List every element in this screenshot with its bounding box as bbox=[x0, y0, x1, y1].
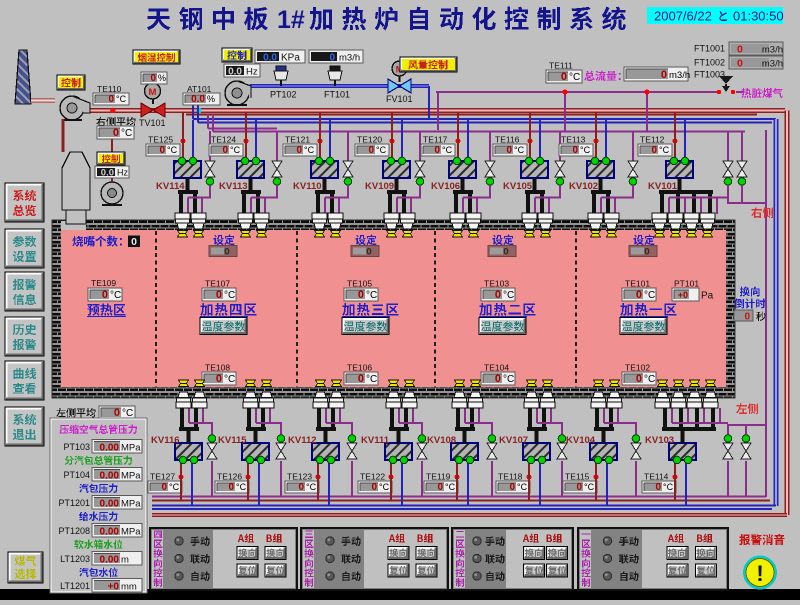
svg-text:0.0: 0.0 bbox=[228, 67, 242, 78]
svg-text:0: 0 bbox=[737, 58, 743, 70]
svg-text:FT1001: FT1001 bbox=[694, 44, 725, 54]
svg-text:°C: °C bbox=[167, 145, 178, 155]
svg-text:0: 0 bbox=[655, 482, 661, 493]
svg-text:KV107: KV107 bbox=[499, 435, 528, 446]
svg-text:KV112: KV112 bbox=[288, 435, 317, 446]
svg-text:FT1003: FT1003 bbox=[694, 70, 725, 80]
svg-text:TE105: TE105 bbox=[347, 279, 372, 289]
svg-text:%: % bbox=[207, 94, 215, 104]
svg-text:°C: °C bbox=[169, 482, 180, 492]
svg-text:PT1208: PT1208 bbox=[58, 526, 90, 536]
svg-text:Hz: Hz bbox=[117, 168, 128, 178]
svg-text:°C: °C bbox=[514, 145, 525, 155]
svg-text:Pa: Pa bbox=[701, 291, 714, 302]
svg-text:TE118: TE118 bbox=[498, 472, 523, 482]
svg-text:0: 0 bbox=[114, 407, 120, 419]
svg-text:°C: °C bbox=[584, 482, 595, 492]
svg-text:m: m bbox=[121, 555, 129, 566]
svg-text:Hz: Hz bbox=[246, 67, 258, 78]
svg-text:TE123: TE123 bbox=[287, 472, 312, 482]
svg-text:TE124: TE124 bbox=[211, 135, 236, 145]
svg-text:°C: °C bbox=[110, 290, 121, 301]
svg-text:0: 0 bbox=[737, 44, 743, 56]
svg-text:0: 0 bbox=[503, 247, 508, 258]
svg-text:PT1201: PT1201 bbox=[58, 498, 90, 508]
svg-text:KV108: KV108 bbox=[427, 435, 456, 446]
svg-text:TE113: TE113 bbox=[561, 135, 586, 145]
svg-text:0.00: 0.00 bbox=[100, 527, 120, 538]
svg-text:KV116: KV116 bbox=[151, 435, 180, 446]
svg-text:0: 0 bbox=[495, 289, 501, 301]
svg-text:0: 0 bbox=[222, 145, 228, 156]
svg-text:0.0: 0.0 bbox=[263, 53, 277, 64]
svg-text:0: 0 bbox=[358, 373, 364, 385]
svg-text:TE108: TE108 bbox=[205, 363, 230, 373]
svg-text:!: ! bbox=[756, 561, 763, 586]
svg-text:0: 0 bbox=[576, 482, 582, 493]
svg-text:PT102: PT102 bbox=[270, 90, 297, 100]
svg-text:°C: °C bbox=[517, 482, 528, 492]
svg-text:0: 0 bbox=[358, 289, 364, 301]
svg-text:KV103: KV103 bbox=[645, 435, 674, 446]
svg-text:0: 0 bbox=[644, 247, 649, 258]
svg-text:°C: °C bbox=[644, 290, 655, 301]
svg-text:°C: °C bbox=[503, 374, 514, 385]
svg-text:0: 0 bbox=[366, 247, 371, 258]
svg-text:%: % bbox=[158, 73, 166, 83]
svg-text:mm: mm bbox=[121, 582, 137, 593]
svg-text:TE127: TE127 bbox=[150, 472, 175, 482]
svg-text:KPa: KPa bbox=[281, 53, 300, 64]
svg-text:0: 0 bbox=[224, 247, 229, 258]
svg-text:0: 0 bbox=[636, 289, 642, 301]
svg-text:FT101: FT101 bbox=[324, 90, 350, 100]
svg-text:TE104: TE104 bbox=[484, 363, 509, 373]
svg-text:KV115: KV115 bbox=[218, 435, 247, 446]
svg-text:0.00: 0.00 bbox=[100, 471, 120, 482]
svg-text:°C: °C bbox=[580, 145, 591, 155]
svg-text:0: 0 bbox=[102, 289, 108, 301]
svg-text:TE116: TE116 bbox=[495, 135, 520, 145]
svg-text:°C: °C bbox=[644, 374, 655, 385]
svg-text:0: 0 bbox=[216, 289, 222, 301]
svg-text:0.00: 0.00 bbox=[100, 443, 120, 454]
svg-text:0: 0 bbox=[509, 482, 515, 493]
svg-text:0: 0 bbox=[108, 94, 114, 105]
svg-text:0: 0 bbox=[131, 236, 137, 248]
svg-text:0: 0 bbox=[216, 373, 222, 385]
svg-text:0: 0 bbox=[368, 145, 374, 156]
svg-text:MPa: MPa bbox=[121, 443, 141, 454]
svg-text:°C: °C bbox=[236, 482, 247, 492]
svg-text:TV101: TV101 bbox=[139, 118, 166, 128]
svg-text:0.00: 0.00 bbox=[100, 499, 120, 510]
svg-text:0: 0 bbox=[636, 373, 642, 385]
svg-text:LT1201: LT1201 bbox=[60, 581, 90, 591]
svg-text:PT104: PT104 bbox=[63, 470, 90, 480]
svg-text:°C: °C bbox=[442, 145, 453, 155]
svg-text:0: 0 bbox=[113, 127, 119, 139]
svg-text:+0: +0 bbox=[108, 582, 120, 593]
svg-text:FT1002: FT1002 bbox=[694, 58, 725, 68]
svg-text:0.0: 0.0 bbox=[191, 94, 205, 105]
svg-text:+0: +0 bbox=[678, 290, 688, 300]
svg-text:TE125: TE125 bbox=[148, 135, 173, 145]
svg-text:0: 0 bbox=[437, 482, 443, 493]
svg-text:0: 0 bbox=[161, 482, 167, 493]
svg-text:°C: °C bbox=[304, 145, 315, 155]
svg-text:KV111: KV111 bbox=[361, 435, 390, 446]
svg-text:°C: °C bbox=[659, 145, 670, 155]
svg-text:°C: °C bbox=[224, 290, 235, 301]
svg-text:KV104: KV104 bbox=[566, 435, 596, 446]
svg-text:0: 0 bbox=[329, 53, 335, 64]
svg-text:°C: °C bbox=[122, 408, 133, 419]
svg-text:°C: °C bbox=[379, 482, 390, 492]
svg-text:TE117: TE117 bbox=[423, 135, 448, 145]
svg-text:TE103: TE103 bbox=[484, 279, 509, 289]
svg-text:°C: °C bbox=[376, 145, 387, 155]
svg-text:0: 0 bbox=[159, 145, 165, 156]
svg-text:°C: °C bbox=[230, 145, 241, 155]
svg-text:TE122: TE122 bbox=[360, 472, 385, 482]
svg-text:0: 0 bbox=[228, 482, 234, 493]
svg-text:TE102: TE102 bbox=[625, 363, 650, 373]
svg-text:°C: °C bbox=[663, 482, 674, 492]
svg-text:0.00: 0.00 bbox=[100, 555, 120, 566]
svg-text:TE107: TE107 bbox=[205, 279, 230, 289]
svg-text:0: 0 bbox=[298, 482, 304, 493]
svg-text:TE106: TE106 bbox=[347, 363, 372, 373]
svg-text:0: 0 bbox=[572, 145, 578, 156]
svg-text:TE121: TE121 bbox=[285, 135, 310, 145]
svg-text:TE101: TE101 bbox=[625, 279, 650, 289]
svg-text:°C: °C bbox=[366, 290, 377, 301]
svg-text:m3/h: m3/h bbox=[339, 53, 360, 64]
svg-text:TE112: TE112 bbox=[640, 135, 665, 145]
svg-text:TE114: TE114 bbox=[644, 472, 669, 482]
svg-text:PT101: PT101 bbox=[674, 279, 699, 289]
svg-text:0: 0 bbox=[371, 482, 377, 493]
svg-text:0.0: 0.0 bbox=[101, 168, 114, 179]
svg-text:0: 0 bbox=[561, 71, 567, 83]
svg-text:LT1203: LT1203 bbox=[60, 554, 90, 564]
svg-text:TE109: TE109 bbox=[91, 278, 116, 288]
svg-text:01:30:50: 01:30:50 bbox=[733, 9, 784, 24]
svg-text:TE115: TE115 bbox=[565, 472, 590, 482]
svg-text:MPa: MPa bbox=[121, 499, 141, 510]
svg-text:0: 0 bbox=[661, 69, 667, 81]
svg-text:TE126: TE126 bbox=[217, 472, 242, 482]
svg-text:0: 0 bbox=[651, 145, 657, 156]
svg-text:0: 0 bbox=[150, 73, 156, 84]
svg-text:PT103: PT103 bbox=[63, 442, 90, 452]
svg-text:0: 0 bbox=[744, 312, 750, 323]
svg-text:0: 0 bbox=[495, 373, 501, 385]
svg-text:°C: °C bbox=[366, 374, 377, 385]
svg-text:°C: °C bbox=[503, 290, 514, 301]
svg-text:°C: °C bbox=[306, 482, 317, 492]
svg-text:TE120: TE120 bbox=[357, 135, 382, 145]
svg-text:1#: 1# bbox=[277, 6, 305, 34]
svg-text:°C: °C bbox=[121, 128, 132, 139]
svg-text:FV101: FV101 bbox=[386, 94, 413, 104]
svg-text:°C: °C bbox=[445, 482, 456, 492]
svg-text:m3/h: m3/h bbox=[762, 59, 783, 70]
svg-text:°C: °C bbox=[224, 374, 235, 385]
svg-text:TE119: TE119 bbox=[426, 472, 451, 482]
svg-text:M: M bbox=[149, 87, 157, 98]
svg-text:°C: °C bbox=[569, 72, 580, 83]
svg-text:MPa: MPa bbox=[121, 527, 141, 538]
svg-text:2007/6/22: 2007/6/22 bbox=[654, 9, 712, 24]
svg-text:0: 0 bbox=[296, 145, 302, 156]
svg-text:TE111: TE111 bbox=[549, 61, 573, 71]
svg-text:0: 0 bbox=[434, 145, 440, 156]
svg-text:°C: °C bbox=[116, 94, 127, 104]
svg-text:0: 0 bbox=[506, 145, 512, 156]
svg-text:MPa: MPa bbox=[121, 471, 141, 482]
svg-text:m3/h: m3/h bbox=[762, 45, 783, 56]
svg-text:m3/h: m3/h bbox=[669, 70, 690, 81]
